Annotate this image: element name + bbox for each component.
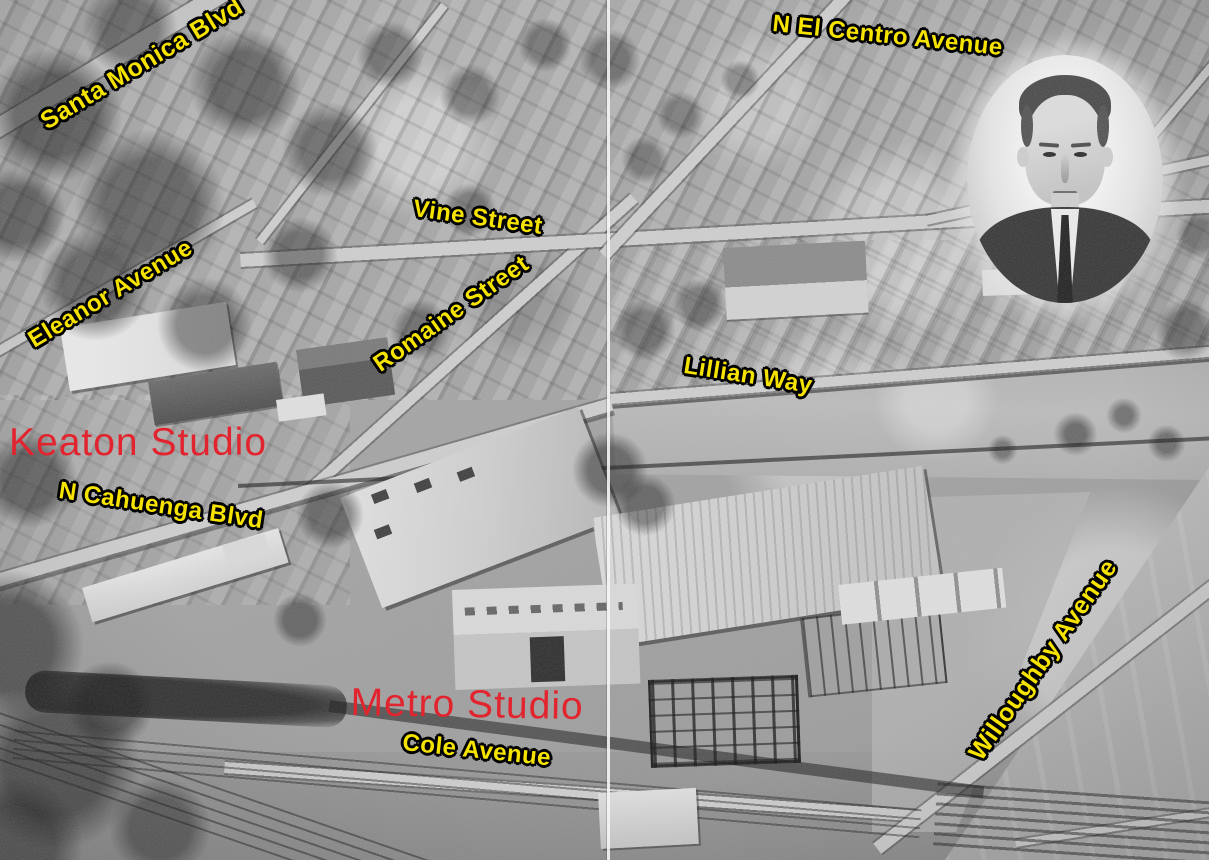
portrait-face (1025, 95, 1105, 205)
portrait-hair-side (1021, 105, 1033, 147)
aerial-photo (0, 0, 1209, 860)
portrait-ear (1101, 147, 1113, 167)
portrait-eye (1074, 152, 1087, 157)
portrait-nose (1061, 153, 1069, 183)
man-oval-portrait (967, 55, 1163, 303)
portrait-hair-side (1097, 105, 1109, 147)
portrait-ear (1017, 147, 1029, 167)
portrait-eye (1043, 152, 1056, 157)
page-fold-seam (607, 0, 610, 860)
annotated-aerial-photo: Santa Monica Blvd N El Centro Avenue Vin… (0, 0, 1209, 860)
